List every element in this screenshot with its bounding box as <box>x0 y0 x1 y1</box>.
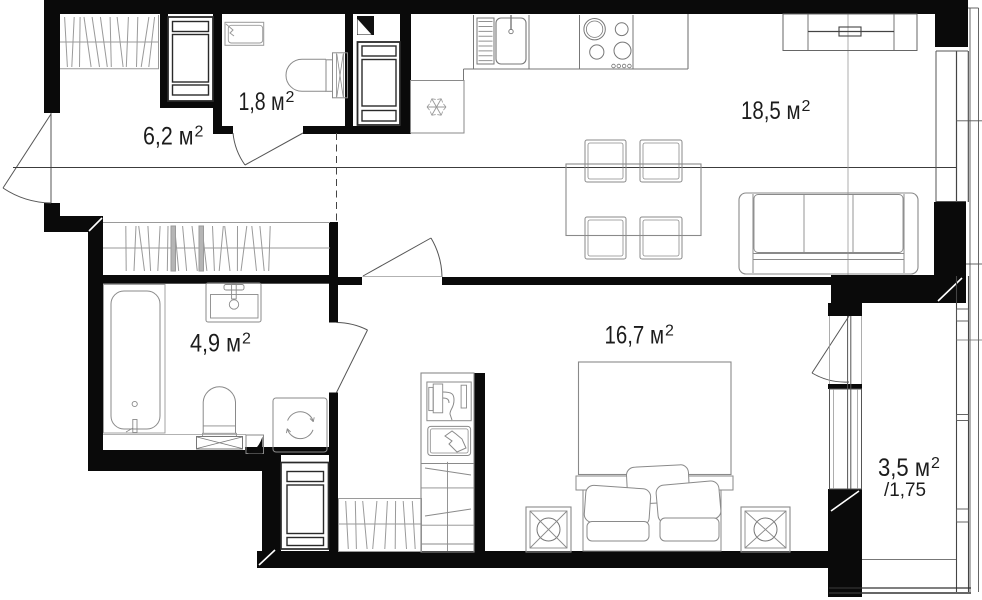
svg-text:/1,75: /1,75 <box>884 479 926 501</box>
svg-text:2: 2 <box>195 124 204 141</box>
svg-text:18,5 м: 18,5 м <box>741 97 801 125</box>
svg-text:2: 2 <box>242 331 251 348</box>
svg-text:16,7 м: 16,7 м <box>605 322 665 350</box>
svg-text:2: 2 <box>931 455 940 472</box>
svg-text:3,5 м: 3,5 м <box>878 454 930 482</box>
svg-text:2: 2 <box>802 98 811 115</box>
svg-text:2: 2 <box>665 323 674 340</box>
svg-text:1,8 м: 1,8 м <box>239 88 285 116</box>
svg-text:4,9 м: 4,9 м <box>190 330 241 358</box>
svg-text:2: 2 <box>286 89 295 106</box>
svg-text:6,2 м: 6,2 м <box>143 123 194 151</box>
